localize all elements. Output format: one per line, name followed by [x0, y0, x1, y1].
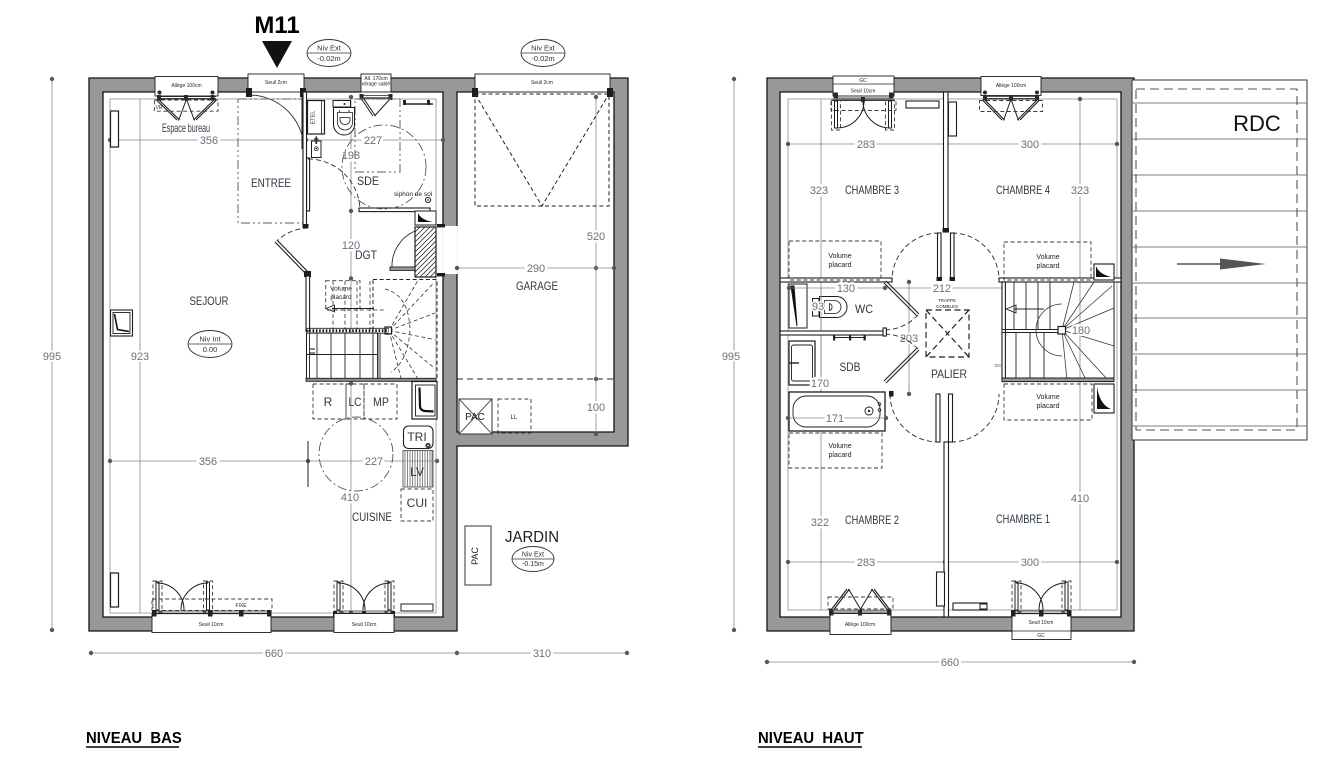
svg-text:170: 170: [811, 378, 829, 390]
svg-text:PAC: PAC: [470, 547, 480, 565]
svg-text:660: 660: [265, 648, 283, 660]
svg-text:Volume: Volume: [330, 286, 352, 293]
svg-text:180: 180: [1072, 325, 1090, 337]
svg-text:300: 300: [1021, 139, 1039, 151]
svg-text:Seuil 2cm: Seuil 2cm: [265, 80, 287, 86]
svg-text:520: 520: [587, 231, 605, 243]
svg-text:placard: placard: [829, 452, 852, 459]
svg-text:SDB: SDB: [840, 360, 861, 374]
svg-text:Volume: Volume: [1036, 254, 1059, 261]
svg-text:CUISINE: CUISINE: [352, 510, 392, 524]
svg-text:LV: LV: [410, 465, 424, 479]
svg-text:PAC: PAC: [465, 412, 485, 423]
svg-text:227: 227: [365, 456, 383, 468]
svg-text:356: 356: [200, 135, 218, 147]
svg-text:placard: placard: [1037, 263, 1060, 270]
svg-text:vitrage sablé: vitrage sablé: [362, 82, 391, 88]
svg-text:Seuil 10cm: Seuil 10cm: [199, 622, 224, 628]
svg-text:322: 322: [811, 517, 829, 529]
svg-text:GARAGE: GARAGE: [516, 279, 558, 293]
svg-text:Niv Int: Niv Int: [199, 335, 221, 344]
svg-text:171: 171: [826, 413, 844, 425]
svg-text:NIVEAU HAUT: NIVEAU HAUT: [758, 730, 864, 748]
svg-text:Allège 100cm: Allège 100cm: [996, 83, 1026, 89]
svg-text:Volume: Volume: [1036, 394, 1059, 401]
svg-text:PALIER: PALIER: [931, 367, 967, 381]
svg-text:-0.02m: -0.02m: [531, 54, 554, 63]
svg-text:GC: GC: [995, 363, 1003, 368]
svg-text:CHAMBRE 4: CHAMBRE 4: [996, 183, 1050, 197]
svg-text:LL: LL: [511, 415, 518, 421]
svg-text:323: 323: [810, 185, 828, 197]
svg-text:GC: GC: [859, 78, 867, 84]
svg-text:CHAMBRE 2: CHAMBRE 2: [845, 513, 899, 527]
svg-text:placard: placard: [829, 262, 852, 269]
svg-text:130: 130: [837, 283, 855, 295]
svg-text:NIVEAU BAS: NIVEAU BAS: [86, 730, 182, 748]
svg-text:JARDIN: JARDIN: [505, 529, 559, 546]
svg-text:Niv Ext: Niv Ext: [317, 44, 342, 53]
svg-text:CHAMBRE 3: CHAMBRE 3: [845, 183, 899, 197]
svg-text:310: 310: [533, 648, 551, 660]
svg-text:siphon de sol: siphon de sol: [394, 191, 433, 198]
svg-text:Espace bureau: Espace bureau: [162, 121, 210, 135]
svg-text:ETEL: ETEL: [311, 111, 317, 125]
svg-text:MP: MP: [373, 395, 389, 409]
svg-text:198: 198: [342, 150, 360, 162]
svg-text:660: 660: [941, 657, 959, 669]
svg-text:WC: WC: [855, 302, 873, 316]
svg-text:100: 100: [587, 402, 605, 414]
svg-text:283: 283: [857, 557, 875, 569]
svg-text:R: R: [324, 395, 333, 409]
svg-text:356: 356: [199, 456, 217, 468]
svg-text:Niv Ext: Niv Ext: [531, 44, 556, 53]
svg-text:TRAPPE: TRAPPE: [938, 298, 956, 303]
svg-text:203: 203: [900, 333, 918, 345]
svg-text:Seuil 10cm: Seuil 10cm: [352, 622, 377, 628]
svg-text:SEJOUR: SEJOUR: [190, 294, 229, 308]
svg-text:Niv Ext: Niv Ext: [522, 552, 544, 559]
svg-text:995: 995: [43, 351, 61, 363]
svg-text:323: 323: [1071, 185, 1089, 197]
svg-text:TRI: TRI: [407, 430, 426, 444]
svg-text:410: 410: [1071, 493, 1089, 505]
svg-text:COMBLES: COMBLES: [936, 304, 958, 309]
svg-text:Allège 100cm: Allège 100cm: [171, 83, 201, 89]
svg-text:DGT: DGT: [355, 248, 378, 262]
svg-text:283: 283: [857, 139, 875, 151]
svg-text:M11: M11: [254, 12, 299, 39]
svg-text:410: 410: [341, 492, 359, 504]
svg-text:FIXE: FIXE: [235, 603, 247, 609]
svg-text:GC: GC: [1037, 633, 1045, 639]
svg-text:Volume: Volume: [828, 253, 851, 260]
svg-text:ENTREE: ENTREE: [251, 176, 291, 190]
svg-text:-0.02m: -0.02m: [317, 54, 340, 63]
svg-text:227: 227: [364, 135, 382, 147]
svg-text:290: 290: [527, 263, 545, 275]
svg-text:995: 995: [722, 351, 740, 363]
svg-text:93: 93: [812, 301, 824, 313]
svg-text:Volume: Volume: [828, 443, 851, 450]
svg-text:300: 300: [1021, 557, 1039, 569]
svg-text:0.00: 0.00: [203, 345, 218, 354]
svg-text:LC: LC: [349, 395, 362, 409]
svg-text:RDC: RDC: [1233, 111, 1281, 136]
svg-text:923: 923: [131, 351, 149, 363]
svg-text:212: 212: [933, 283, 951, 295]
svg-text:VR: VR: [156, 105, 163, 111]
svg-text:CUI: CUI: [407, 496, 428, 510]
svg-text:SDE: SDE: [357, 174, 379, 188]
svg-text:Allège 100cm: Allège 100cm: [845, 622, 875, 628]
svg-text:-0.15m: -0.15m: [522, 561, 544, 568]
svg-text:placard: placard: [1037, 403, 1060, 410]
svg-text:Seuil 10cm: Seuil 10cm: [1029, 620, 1054, 626]
svg-text:placard: placard: [330, 294, 352, 301]
svg-text:Seuil 10cm: Seuil 10cm: [851, 89, 876, 95]
svg-text:Seuil 2cm: Seuil 2cm: [531, 80, 553, 86]
svg-text:CHAMBRE 1: CHAMBRE 1: [996, 512, 1050, 526]
